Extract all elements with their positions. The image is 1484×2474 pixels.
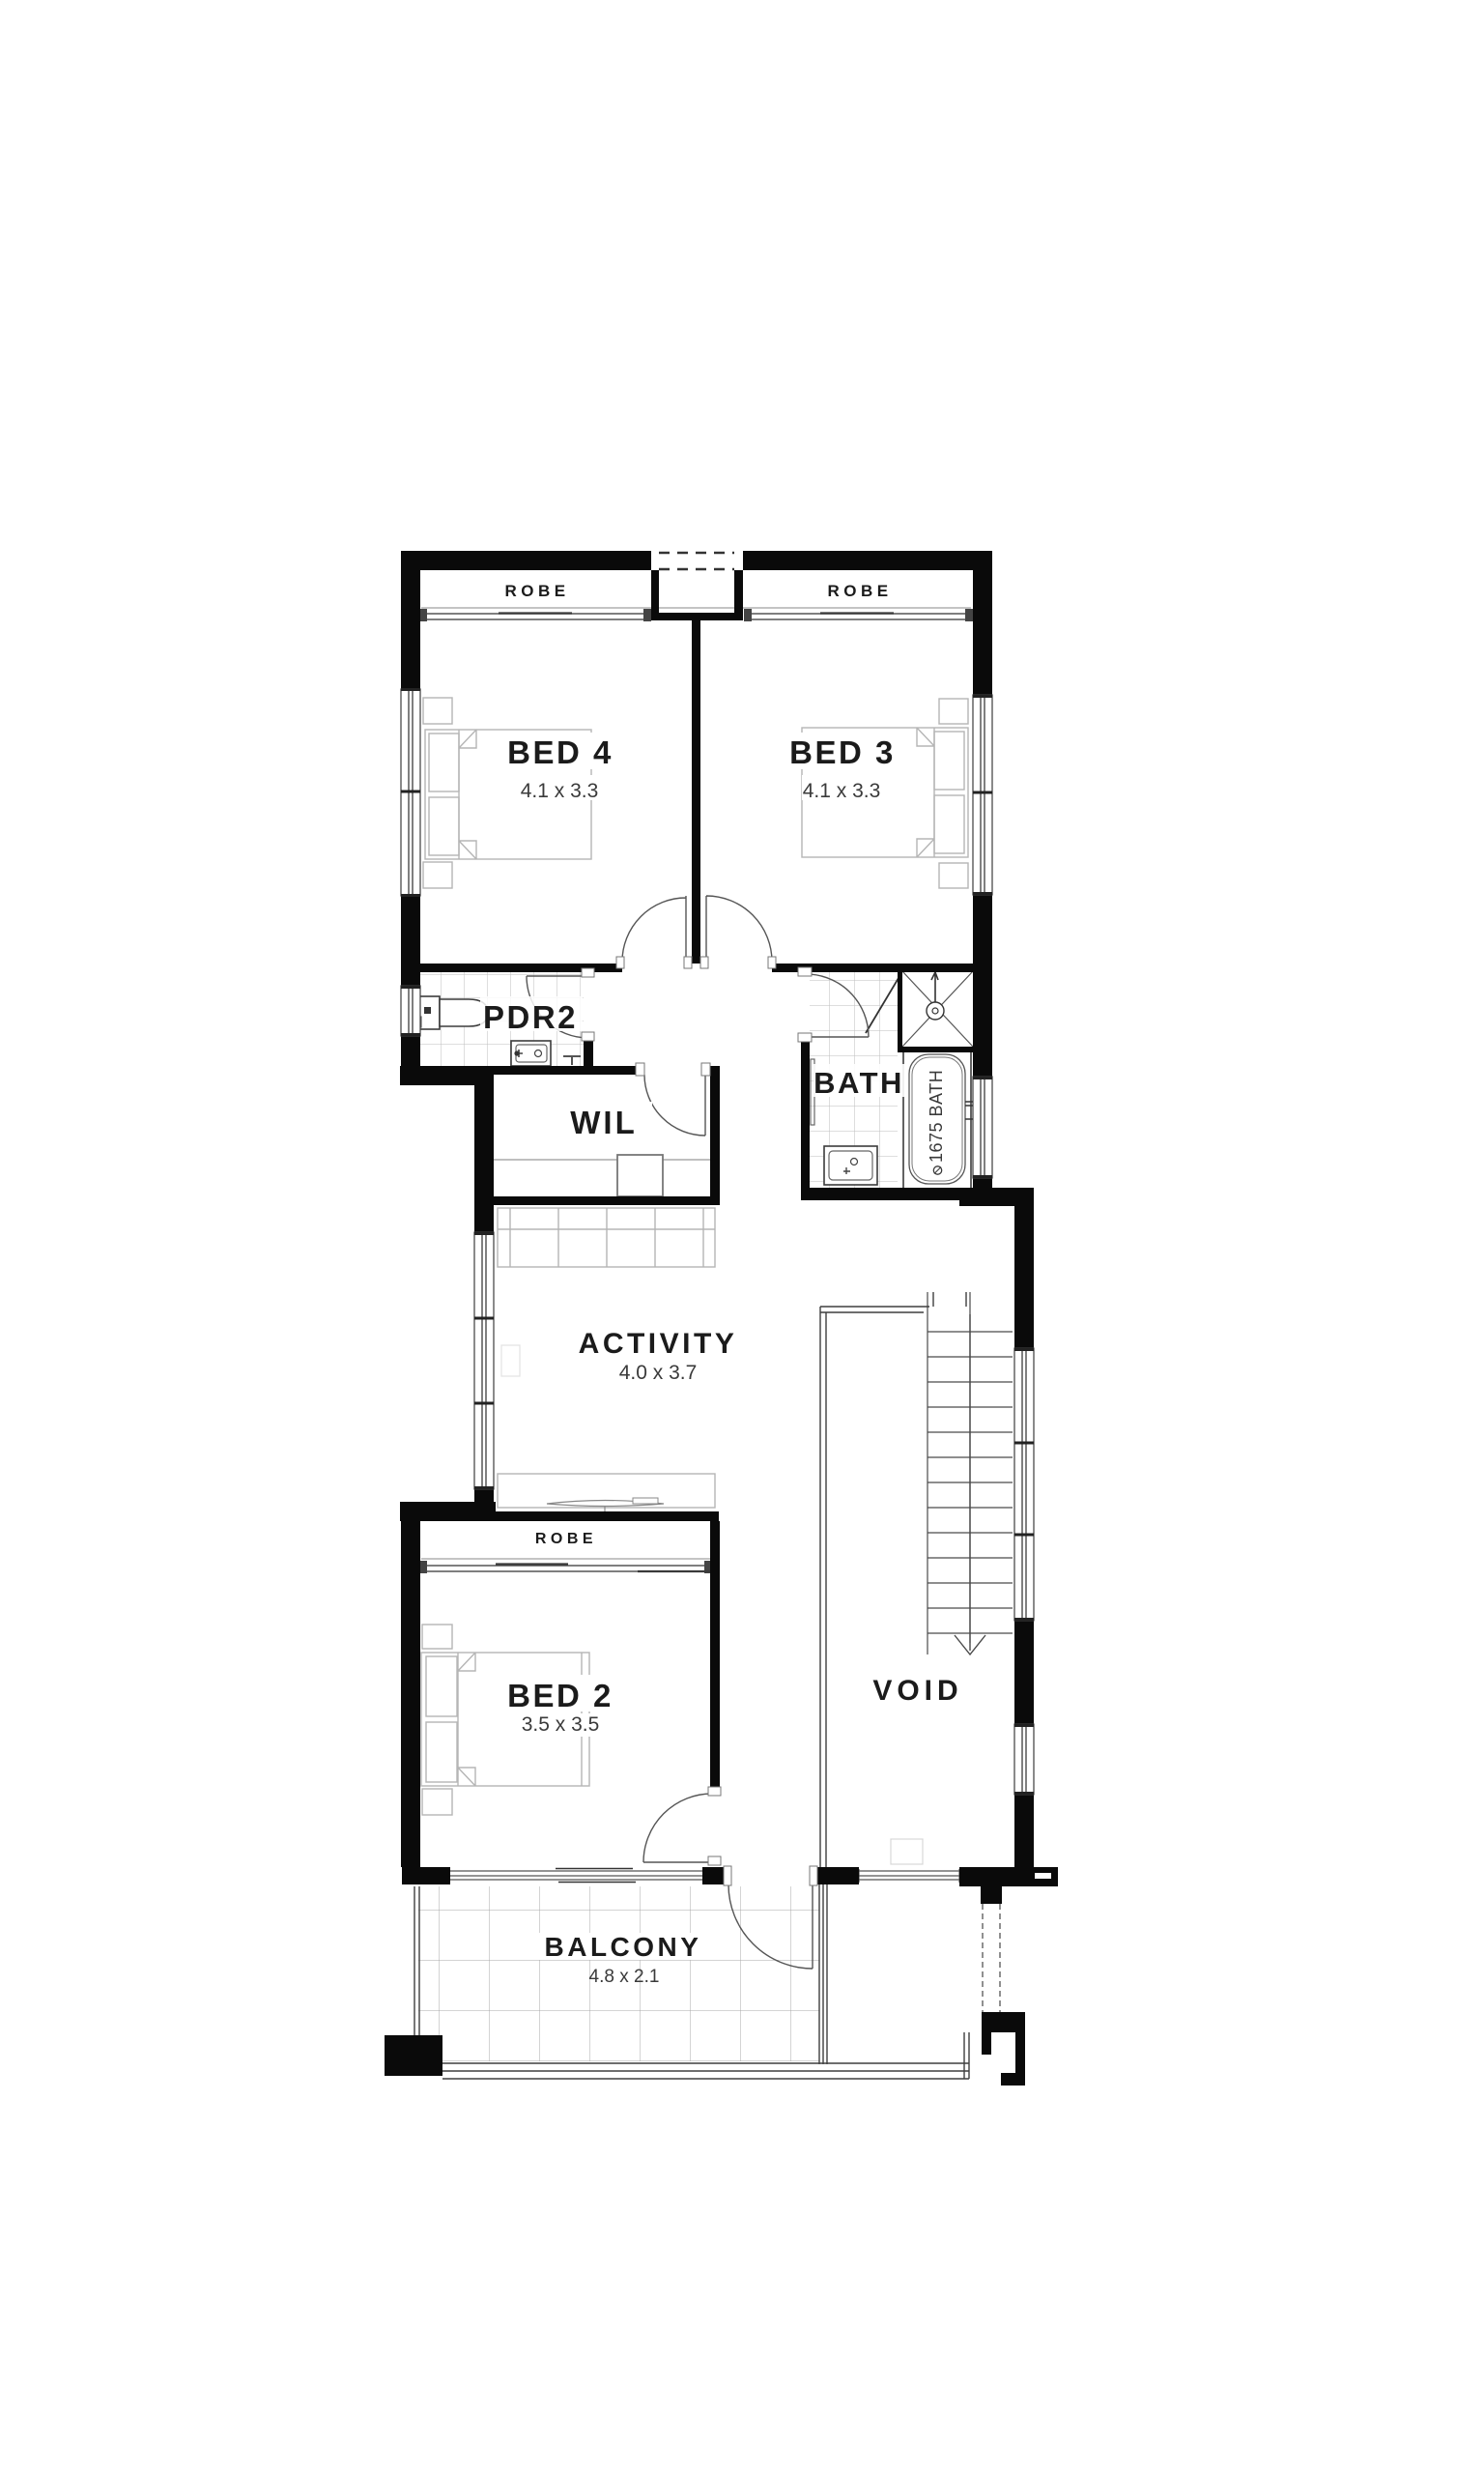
svg-text:4.1 x 3.3: 4.1 x 3.3 [521, 780, 599, 802]
svg-text:1675 BATH: 1675 BATH [927, 1070, 946, 1163]
svg-text:4.1 x 3.3: 4.1 x 3.3 [803, 780, 881, 802]
svg-text:BALCONY: BALCONY [545, 1932, 702, 1962]
svg-text:BED 2: BED 2 [507, 1678, 614, 1713]
svg-text:4.0 x 3.7: 4.0 x 3.7 [619, 1362, 698, 1384]
svg-text:BED 3: BED 3 [789, 734, 896, 770]
svg-text:WIL: WIL [570, 1105, 637, 1140]
svg-text:BATH: BATH [813, 1066, 904, 1100]
svg-text:VOID: VOID [872, 1675, 962, 1707]
svg-text:ROBE: ROBE [827, 582, 892, 600]
svg-text:ROBE: ROBE [535, 1531, 597, 1547]
svg-text:BED 4: BED 4 [507, 734, 614, 770]
svg-text:ROBE: ROBE [504, 582, 569, 600]
svg-text:3.5 x 3.5: 3.5 x 3.5 [522, 1713, 600, 1736]
svg-text:PDR2: PDR2 [483, 999, 578, 1035]
svg-text:ACTIVITY: ACTIVITY [579, 1328, 738, 1360]
svg-text:4.8 x 2.1: 4.8 x 2.1 [589, 1967, 660, 1987]
